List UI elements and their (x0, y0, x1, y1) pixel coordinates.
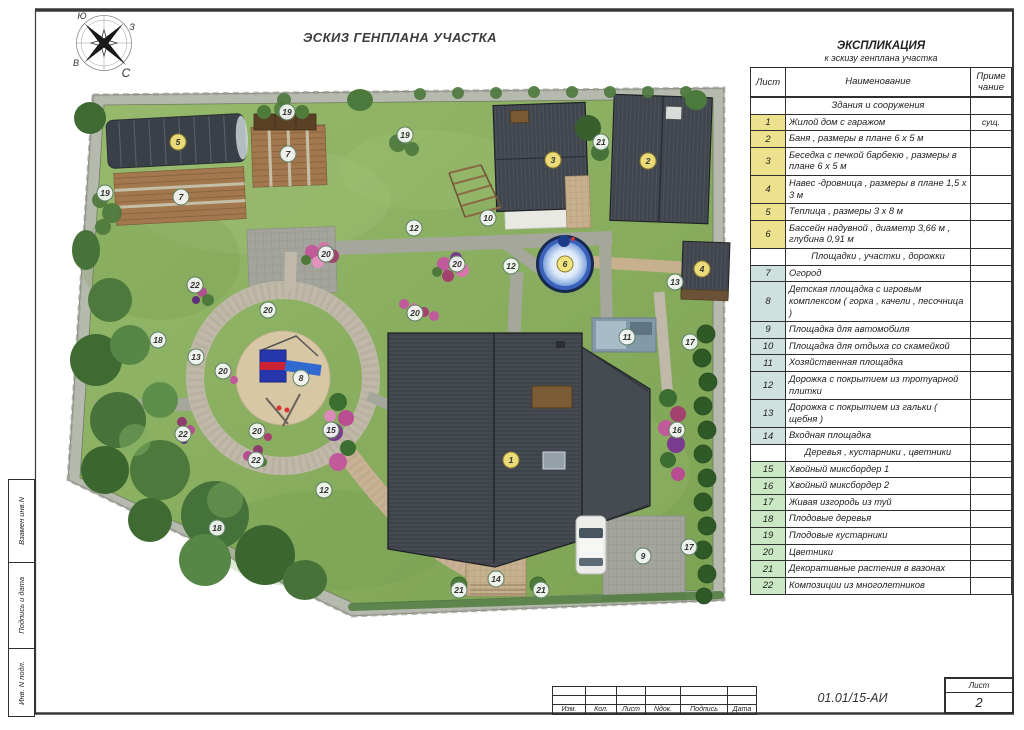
legend-row-note (971, 544, 1012, 561)
legend-row-number: 17 (751, 494, 786, 511)
plan-marker-12: 12 (503, 258, 519, 274)
legend-row-note (971, 355, 1012, 372)
plan-marker-20: 20 (215, 363, 231, 379)
legend-row-note (971, 220, 1012, 248)
legend-row-number: 15 (751, 461, 786, 478)
legend-cell-empty (971, 445, 1012, 462)
plan-marker-11: 11 (619, 329, 635, 345)
legend-row-number: 20 (751, 544, 786, 561)
legend-section-row: Площадки , участки , дорожки (751, 249, 1012, 266)
plan-marker-20: 20 (249, 423, 265, 439)
legend-row-name: Хвойный миксбордер 2 (786, 478, 971, 495)
legend-row-name: Живая изгородь из туй (786, 494, 971, 511)
legend-row-number: 18 (751, 511, 786, 528)
legend-row-number: 3 (751, 147, 786, 175)
svg-text:22: 22 (177, 429, 188, 439)
plan-marker-17: 17 (681, 539, 697, 555)
legend-row-number: 9 (751, 322, 786, 339)
stamp-column-label: Подпись (681, 705, 728, 715)
legend-row: 7Огород (751, 265, 1012, 282)
svg-text:15: 15 (326, 425, 336, 435)
legend-section-row: Деревья , кустарники , цветники (751, 445, 1012, 462)
legend-row-note (971, 528, 1012, 545)
legend-row: 14Входная площадка (751, 428, 1012, 445)
svg-text:19: 19 (282, 107, 292, 117)
svg-text:21: 21 (535, 585, 546, 595)
legend-row-note (971, 461, 1012, 478)
svg-text:2: 2 (645, 156, 651, 166)
sheet-label: Лист (946, 679, 1012, 693)
legend-row-number: 5 (751, 204, 786, 221)
legend-row-number: 21 (751, 561, 786, 578)
legend-row-number: 6 (751, 220, 786, 248)
legend-row-name: Хозяйственная площадка (786, 355, 971, 372)
svg-text:20: 20 (451, 259, 462, 269)
legend-col-sheet: Лист (751, 68, 786, 98)
legend-row: 19Плодовые кустарники (751, 528, 1012, 545)
svg-text:12: 12 (506, 261, 516, 271)
stamp-column-label: Nдок. (646, 705, 681, 715)
legend-row: 1Жилой дом с гаражомсущ. (751, 114, 1012, 131)
legend-row-name: Дорожка с покрытием из тротуарной плитки (786, 371, 971, 399)
legend-row-note (971, 131, 1012, 148)
legend-row-name: Декоративные растения в вазонах (786, 561, 971, 578)
legend-cell-empty (751, 445, 786, 462)
sheet-number-box: Лист 2 (944, 677, 1014, 714)
svg-text:20: 20 (251, 426, 262, 436)
legend-row: 15Хвойный миксбордер 1 (751, 461, 1012, 478)
legend-row-note (971, 478, 1012, 495)
roof-dormer (532, 386, 572, 408)
legend-row-number: 22 (751, 577, 786, 594)
legend-row: 8Детская площадка с игровым комплексом (… (751, 282, 1012, 322)
legend-row: 21Декоративные растения в вазонах (751, 561, 1012, 578)
side-label: Подпись и дата (9, 563, 34, 649)
legend-row: 5Теплица , размеры 3 х 8 м (751, 204, 1012, 221)
legend-row-name: Цветники (786, 544, 971, 561)
plan-marker-5: 5 (170, 134, 186, 150)
plan-marker-19: 19 (279, 104, 295, 120)
legend-row-name: Плодовые деревья (786, 511, 971, 528)
legend-row: 18Плодовые деревья (751, 511, 1012, 528)
legend-row-note (971, 428, 1012, 445)
plan-marker-12: 12 (406, 220, 422, 236)
legend-row-note (971, 577, 1012, 594)
stamp-empty-row (553, 687, 757, 696)
legend-row-name: Композиции из многолетников (786, 577, 971, 594)
plan-marker-18: 18 (150, 332, 166, 348)
svg-text:1: 1 (509, 455, 514, 465)
svg-text:20: 20 (409, 308, 420, 318)
legend-cell-empty (971, 97, 1012, 114)
stamp-cell (646, 687, 681, 696)
document-number: 01.01/15-АИ (745, 691, 960, 705)
plan-marker-3: 3 (545, 152, 561, 168)
stamp-empty-row (553, 696, 757, 705)
legend-row-number: 12 (751, 371, 786, 399)
legend-row-note (971, 147, 1012, 175)
plan-marker-13: 13 (667, 274, 683, 290)
svg-text:10: 10 (483, 213, 493, 223)
svg-text:21: 21 (453, 585, 464, 595)
svg-text:17: 17 (685, 337, 696, 347)
legend-row-name: Плодовые кустарники (786, 528, 971, 545)
legend-header-row: Лист Наименование Примечание (751, 68, 1012, 98)
legend-row-note (971, 282, 1012, 322)
plan-marker-22: 22 (248, 452, 264, 468)
side-label-column: Взамен инв.NПодпись и датаИнв. N подл. (8, 479, 35, 717)
stamp-cell (681, 696, 728, 705)
plan-marker-16: 16 (669, 422, 685, 438)
sheet-number: 2 (946, 693, 1012, 712)
legend-row-note (971, 511, 1012, 528)
stamp-cell (553, 696, 586, 705)
stamp-cell (586, 696, 617, 705)
plan-marker-13: 13 (188, 349, 204, 365)
plan-marker-7: 7 (173, 189, 189, 205)
legend-row: 9Площадка для автомобиля (751, 322, 1012, 339)
svg-text:22: 22 (250, 455, 261, 465)
svg-text:19: 19 (100, 188, 110, 198)
side-label-text: Взамен инв.N (17, 497, 26, 545)
legend-row: 12Дорожка с покрытием из тротуарной плит… (751, 371, 1012, 399)
legend-row-note (971, 400, 1012, 428)
legend-row: 10Площадка для отдыха со скамейкой (751, 338, 1012, 355)
legend-row-note (971, 176, 1012, 204)
legend-row: 6Бассейн надувной , диаметр 3,66 м , глу… (751, 220, 1012, 248)
legend-col-name: Наименование (786, 68, 971, 98)
legend-row-note (971, 204, 1012, 221)
plan-marker-7: 7 (280, 146, 296, 162)
stamp-column-label: Изм. (553, 705, 586, 715)
svg-text:20: 20 (217, 366, 228, 376)
legend-section-header: Здания и сооружения (786, 97, 971, 114)
legend-row: 13Дорожка с покрытием из гальки ( щебня … (751, 400, 1012, 428)
plan-marker-9: 9 (635, 548, 651, 564)
legend-row-name: Баня , размеры в плане 6 х 5 м (786, 131, 971, 148)
legend-subtitle: к эскизу генплана участка (750, 53, 1012, 63)
stamp-column-label: Дата (728, 705, 757, 715)
legend-section-row: Здания и сооружения (751, 97, 1012, 114)
side-label: Взамен инв.N (9, 480, 34, 563)
legend-row-name: Навес -дровница , размеры в плане 1,5 х … (786, 176, 971, 204)
legend-row-name: Бассейн надувной , диаметр 3,66 м , глуб… (786, 220, 971, 248)
legend-row-name: Площадка для отдыха со скамейкой (786, 338, 971, 355)
legend-cell-empty (971, 249, 1012, 266)
plan-marker-20: 20 (260, 302, 276, 318)
legend-row-name: Входная площадка (786, 428, 971, 445)
legend-row-name: Дорожка с покрытием из гальки ( щебня ) (786, 400, 971, 428)
svg-text:17: 17 (684, 542, 695, 552)
legend-row-note (971, 338, 1012, 355)
legend-section-header: Площадки , участки , дорожки (786, 249, 971, 266)
plan-marker-20: 20 (449, 256, 465, 272)
legend-row: 20Цветники (751, 544, 1012, 561)
legend-row-number: 19 (751, 528, 786, 545)
legend-row-name: Площадка для автомобиля (786, 322, 971, 339)
legend-row: 16Хвойный миксбордер 2 (751, 478, 1012, 495)
legend-row-number: 11 (751, 355, 786, 372)
legend-section-header: Деревья , кустарники , цветники (786, 445, 971, 462)
legend-panel: ЭКСПЛИКАЦИЯ к эскизу генплана участка Ли… (750, 40, 1012, 595)
steps-area (565, 176, 591, 229)
page-title: ЭСКИЗ ГЕНПЛАНА УЧАСТКА (240, 30, 560, 45)
svg-text:13: 13 (191, 352, 201, 362)
legend-table: Лист Наименование Примечание Здания и со… (750, 67, 1012, 595)
svg-text:21: 21 (595, 137, 606, 147)
plan-marker-21: 21 (593, 134, 609, 150)
legend-row: 3Беседка с печкой барбекю , размеры в пл… (751, 147, 1012, 175)
legend-row-number: 2 (751, 131, 786, 148)
svg-text:12: 12 (319, 485, 329, 495)
compass-rose-icon: Ю З В С (66, 6, 142, 82)
stamp-table: Изм.Кол.ЛистNдок.ПодписьДата (552, 686, 757, 715)
legend-row-name: Теплица , размеры 3 х 8 м (786, 204, 971, 221)
bathhouse-roof (610, 94, 712, 223)
legend-row-name: Беседка с печкой барбекю , размеры в пла… (786, 147, 971, 175)
side-label-text: Инв. N подл. (17, 661, 26, 705)
legend-row-number: 4 (751, 176, 786, 204)
legend-cell-empty (751, 249, 786, 266)
skylight (543, 452, 565, 469)
svg-text:9: 9 (641, 551, 646, 561)
legend-row-note (971, 371, 1012, 399)
plan-marker-17: 17 (682, 334, 698, 350)
plan-marker-15: 15 (323, 422, 339, 438)
svg-text:19: 19 (400, 130, 410, 140)
legend-row-note: сущ. (971, 114, 1012, 131)
legend-row-note (971, 561, 1012, 578)
legend-row-name: Детская площадка с игровым комплексом ( … (786, 282, 971, 322)
car (576, 516, 606, 574)
stamp-cell (586, 687, 617, 696)
legend-row-number: 8 (751, 282, 786, 322)
plan-marker-19: 19 (97, 185, 113, 201)
title-block-stamp: Изм.Кол.ЛистNдок.ПодписьДата (552, 686, 757, 715)
plan-marker-2: 2 (640, 153, 656, 169)
plan-marker-22: 22 (187, 277, 203, 293)
legend-row-number: 16 (751, 478, 786, 495)
plan-marker-21: 21 (451, 582, 467, 598)
svg-text:20: 20 (320, 249, 331, 259)
plan-marker-1: 1 (503, 452, 519, 468)
plan-marker-14: 14 (488, 571, 504, 587)
svg-text:22: 22 (189, 280, 200, 290)
compass-label-east: В (73, 58, 79, 68)
legend-row-number: 14 (751, 428, 786, 445)
svg-text:16: 16 (672, 425, 682, 435)
stamp-cell (646, 696, 681, 705)
chimney (556, 341, 565, 348)
svg-text:3: 3 (551, 155, 556, 165)
svg-text:18: 18 (212, 523, 222, 533)
stamp-cell (553, 687, 586, 696)
stamp-column-label: Лист (617, 705, 646, 715)
side-label: Инв. N подл. (9, 649, 34, 717)
legend-row-name: Огород (786, 265, 971, 282)
legend-row-name: Жилой дом с гаражом (786, 114, 971, 131)
compass-label-south: Ю (77, 11, 86, 21)
stamp-cell (617, 696, 646, 705)
legend-row: 4Навес -дровница , размеры в плане 1,5 х… (751, 176, 1012, 204)
legend-row-name: Хвойный миксбордер 1 (786, 461, 971, 478)
plan-marker-10: 10 (480, 210, 496, 226)
plan-marker-19: 19 (397, 127, 413, 143)
stamp-label-row: Изм.Кол.ЛистNдок.ПодписьДата (553, 705, 757, 715)
legend-row-number: 13 (751, 400, 786, 428)
legend-row-note (971, 322, 1012, 339)
pool-pump (558, 235, 570, 247)
svg-text:5: 5 (176, 137, 181, 147)
svg-text:6: 6 (563, 259, 568, 269)
playground (236, 331, 330, 426)
legend-row-note (971, 265, 1012, 282)
plan-marker-12: 12 (316, 482, 332, 498)
legend-title: ЭКСПЛИКАЦИЯ (750, 40, 1012, 52)
svg-text:18: 18 (153, 335, 163, 345)
legend-row-number: 7 (751, 265, 786, 282)
svg-text:4: 4 (699, 264, 705, 274)
svg-text:12: 12 (409, 223, 419, 233)
plan-marker-20: 20 (407, 305, 423, 321)
plan-marker-22: 22 (175, 426, 191, 442)
stamp-cell (681, 687, 728, 696)
stamp-column-label: Кол. (586, 705, 617, 715)
legend-col-note: Примечание (971, 68, 1012, 98)
svg-text:11: 11 (623, 332, 632, 342)
svg-text:20: 20 (262, 305, 273, 315)
plan-marker-4: 4 (694, 261, 710, 277)
stamp-cell (617, 687, 646, 696)
legend-row-note (971, 494, 1012, 511)
plan-marker-8: 8 (293, 370, 309, 386)
legend-row-number: 10 (751, 338, 786, 355)
plan-marker-18: 18 (209, 520, 225, 536)
plan-marker-6: 6 (557, 256, 573, 272)
legend-row: 11Хозяйственная площадка (751, 355, 1012, 372)
drawing-sheet: 1234567789101112121213131415161717181819… (0, 0, 1024, 730)
legend-row: 2Баня , размеры в плане 6 х 5 м (751, 131, 1012, 148)
legend-row: 22Композиции из многолетников (751, 577, 1012, 594)
legend-row-number: 1 (751, 114, 786, 131)
side-label-text: Подпись и дата (17, 577, 26, 634)
plan-marker-21: 21 (533, 582, 549, 598)
compass-label-west: З (129, 22, 135, 32)
compass-label-north: С (122, 66, 131, 80)
legend-row: 17Живая изгородь из туй (751, 494, 1012, 511)
svg-text:8: 8 (299, 373, 304, 383)
plan-marker-20: 20 (318, 246, 334, 262)
legend-cell-empty (751, 97, 786, 114)
svg-text:13: 13 (670, 277, 680, 287)
svg-text:14: 14 (491, 574, 501, 584)
